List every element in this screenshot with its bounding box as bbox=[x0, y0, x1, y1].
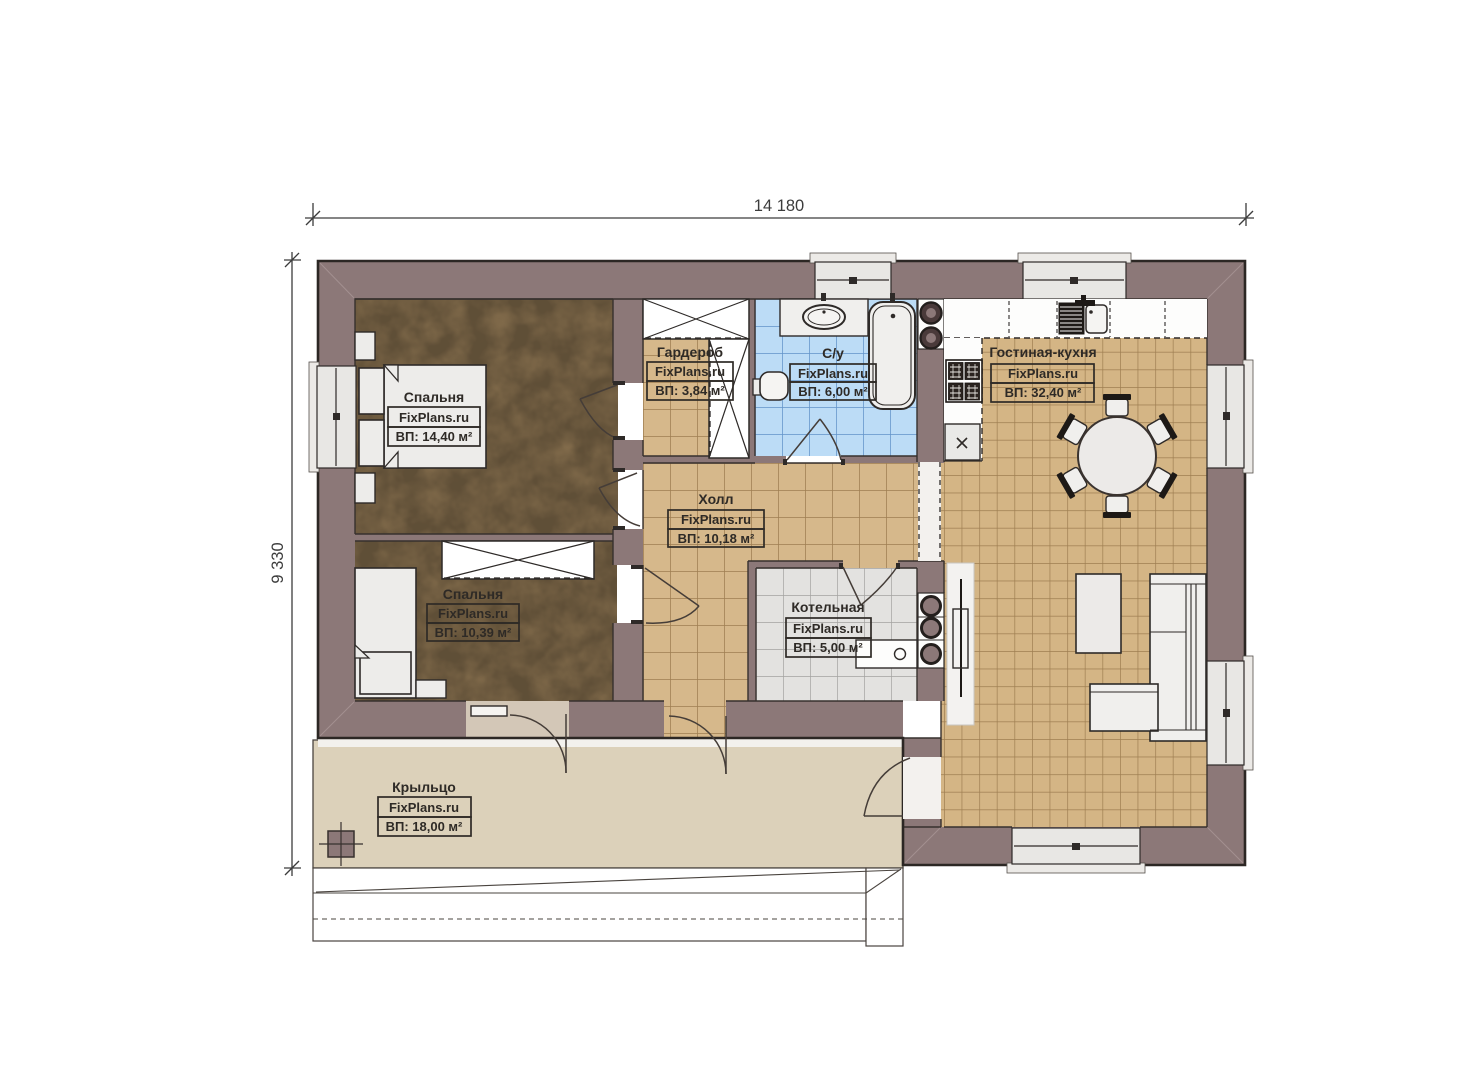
svg-text:Гостиная-кухня: Гостиная-кухня bbox=[989, 344, 1096, 360]
svg-text:9 330: 9 330 bbox=[269, 542, 287, 583]
svg-text:FixPlans.ru: FixPlans.ru bbox=[798, 366, 868, 381]
svg-text:Гардероб: Гардероб bbox=[657, 344, 724, 360]
svg-text:ВП: 3,84 м²: ВП: 3,84 м² bbox=[655, 383, 725, 398]
svg-text:Спальня: Спальня bbox=[404, 389, 464, 405]
svg-text:FixPlans.ru: FixPlans.ru bbox=[655, 364, 725, 379]
svg-text:FixPlans.ru: FixPlans.ru bbox=[438, 606, 508, 621]
svg-text:FixPlans.ru: FixPlans.ru bbox=[793, 621, 863, 636]
svg-text:ВП: 32,40 м²: ВП: 32,40 м² bbox=[1005, 385, 1082, 400]
svg-text:Крыльцо: Крыльцо bbox=[392, 779, 456, 795]
svg-text:ВП: 6,00 м²: ВП: 6,00 м² bbox=[798, 384, 868, 399]
svg-text:ВП: 14,40 м²: ВП: 14,40 м² bbox=[396, 429, 473, 444]
svg-text:Спальня: Спальня bbox=[443, 586, 503, 602]
svg-text:Холл: Холл bbox=[698, 491, 733, 507]
svg-text:FixPlans.ru: FixPlans.ru bbox=[399, 410, 469, 425]
svg-text:С/у: С/у bbox=[822, 345, 844, 361]
svg-text:ВП: 5,00 м²: ВП: 5,00 м² bbox=[793, 640, 863, 655]
svg-text:FixPlans.ru: FixPlans.ru bbox=[681, 512, 751, 527]
svg-text:ВП: 18,00 м²: ВП: 18,00 м² bbox=[386, 819, 463, 834]
svg-text:FixPlans.ru: FixPlans.ru bbox=[1008, 366, 1078, 381]
svg-text:FixPlans.ru: FixPlans.ru bbox=[389, 800, 459, 815]
svg-text:ВП: 10,39 м²: ВП: 10,39 м² bbox=[435, 625, 512, 640]
svg-text:ВП: 10,18 м²: ВП: 10,18 м² bbox=[678, 531, 755, 546]
svg-text:14 180: 14 180 bbox=[754, 197, 804, 215]
svg-text:Котельная: Котельная bbox=[791, 599, 864, 615]
